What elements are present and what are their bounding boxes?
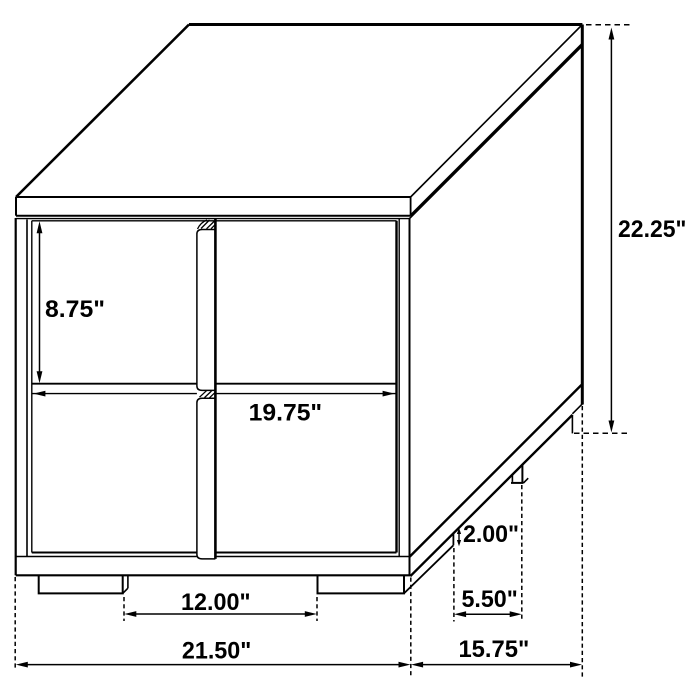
svg-text:2.00": 2.00" [463, 521, 519, 548]
svg-text:8.75": 8.75" [45, 296, 105, 323]
svg-text:21.50": 21.50" [182, 637, 251, 664]
svg-text:12.00": 12.00" [181, 589, 251, 616]
svg-text:5.50": 5.50" [461, 586, 517, 613]
svg-text:15.75": 15.75" [458, 636, 529, 663]
svg-text:22.25": 22.25" [618, 216, 686, 243]
svg-text:19.75": 19.75" [249, 400, 323, 427]
